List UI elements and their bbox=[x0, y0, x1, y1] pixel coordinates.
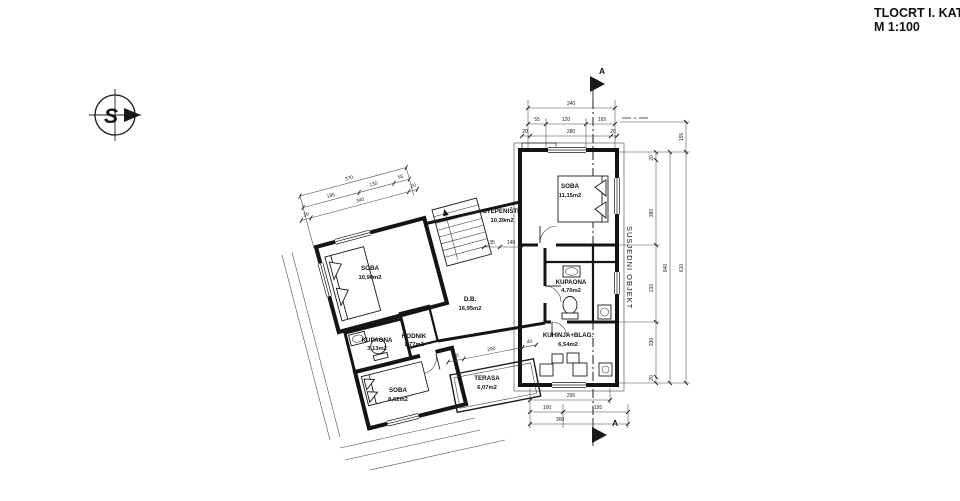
stove-icon bbox=[599, 363, 612, 376]
room-label-db: D.B. bbox=[464, 296, 477, 303]
sink-icon bbox=[563, 266, 580, 277]
room-area-stepeniste: 10,39m2 bbox=[491, 218, 514, 224]
title-block: TLOCRT I. KATA M 1:100 bbox=[874, 6, 960, 34]
dim-label: 380 bbox=[649, 209, 655, 218]
room-label-soba-w: SOBA bbox=[361, 265, 379, 272]
dim-label: 185 bbox=[326, 192, 336, 200]
dim-label: 360 bbox=[556, 417, 565, 423]
dim-chain-stairs: 35 140 bbox=[482, 240, 524, 249]
dim-label: 610 bbox=[679, 264, 685, 273]
dim-label: 55 bbox=[534, 117, 540, 123]
dim-label: 120 bbox=[562, 117, 571, 123]
dim-label: 340 bbox=[567, 101, 576, 107]
dim-label: 20 bbox=[303, 211, 310, 218]
dim-label: 295 bbox=[567, 393, 576, 399]
section-arrow-top-icon bbox=[590, 76, 605, 92]
room-area-terasa: 6,07m2 bbox=[477, 385, 497, 391]
drawing-sheet: TLOCRT I. KATA M 1:100 S A A bbox=[0, 0, 960, 501]
chair-icon bbox=[567, 353, 579, 363]
section-label-bottom: A bbox=[612, 418, 618, 428]
dim-label: 280 bbox=[567, 129, 576, 135]
dim-label: 155 bbox=[679, 133, 685, 142]
dim-label: 340 bbox=[355, 197, 365, 205]
dim-label: 165 bbox=[598, 117, 607, 123]
dim-label: 130 bbox=[369, 181, 379, 189]
room-area-hodnik: 1,77m2 bbox=[404, 342, 424, 348]
table-icon bbox=[573, 363, 587, 376]
dim-label: 370 bbox=[344, 175, 354, 183]
room-label-soba-n: SOBA bbox=[561, 183, 579, 190]
dim-label: 35 bbox=[489, 240, 495, 246]
room-label-hodnik: HODNIK bbox=[402, 333, 427, 340]
dim-label: 210 bbox=[649, 284, 655, 293]
toilet-icon bbox=[562, 297, 578, 320]
room-area-soba-w: 10,90m2 bbox=[359, 275, 382, 281]
dim-label: 100 bbox=[543, 405, 552, 411]
drawing-title: TLOCRT I. KATA bbox=[874, 6, 960, 20]
dim-label: 290 bbox=[487, 346, 497, 354]
north-letter: S bbox=[104, 105, 118, 128]
dim-label: 55 bbox=[397, 174, 404, 181]
left-wing-north-room bbox=[312, 215, 447, 333]
dim-label: 20 bbox=[649, 375, 655, 381]
room-area-kupaona-e: 4,70m2 bbox=[561, 288, 581, 294]
middle-walls bbox=[424, 202, 545, 341]
room-area-kuhinja: 6,54m2 bbox=[558, 342, 578, 348]
floorplan-canvas: TLOCRT I. KATA M 1:100 S A A bbox=[0, 0, 960, 501]
room-area-kupaona-w: 3,13m2 bbox=[367, 346, 387, 352]
chair-icon bbox=[552, 354, 563, 363]
kitchen-furniture bbox=[540, 353, 612, 376]
drawing-scale: M 1:100 bbox=[874, 20, 920, 34]
dim-label: 195 bbox=[594, 405, 603, 411]
section-arrow-bottom-icon bbox=[592, 427, 607, 443]
table-icon bbox=[540, 364, 553, 376]
section-line: A A bbox=[590, 66, 618, 446]
dim-chain-top: 340 55 120 165 20 280 20 bbox=[520, 100, 648, 148]
washing-machine-icon bbox=[598, 305, 611, 319]
room-label-kuhinja: KUHINJA+BLAG. bbox=[543, 332, 594, 339]
dim-label: 140 bbox=[507, 240, 516, 246]
dim-label: 40 bbox=[453, 353, 460, 360]
room-label-soba-s: SOBA bbox=[389, 387, 407, 394]
room-area-soba-n: 11,15m2 bbox=[559, 193, 582, 199]
room-label-kupaona-w: KUPAONA bbox=[362, 337, 393, 344]
room-label-terasa: TERASA bbox=[474, 375, 500, 382]
north-arrow-icon: S bbox=[89, 89, 141, 141]
left-wing-south-room bbox=[354, 345, 467, 432]
dim-label: 40 bbox=[526, 339, 533, 346]
neighbor-building-label: SUSJEDNI OBJEKT bbox=[625, 226, 634, 309]
room-label-stepeniste: STEPENIŠTE bbox=[483, 207, 522, 215]
dim-label: 840 bbox=[663, 264, 669, 273]
dim-label: 20 bbox=[649, 155, 655, 161]
room-area-soba-s: 8,62m2 bbox=[388, 397, 408, 403]
room-area-db: 16,95m2 bbox=[459, 306, 482, 312]
section-label-top: A bbox=[599, 66, 605, 76]
dim-label: 230 bbox=[649, 338, 655, 347]
dim-label: 20 bbox=[410, 183, 417, 190]
dim-label: 20 bbox=[610, 129, 616, 135]
dim-label: 20 bbox=[522, 129, 528, 135]
room-label-kupaona-e: KUPAONA bbox=[556, 279, 587, 286]
